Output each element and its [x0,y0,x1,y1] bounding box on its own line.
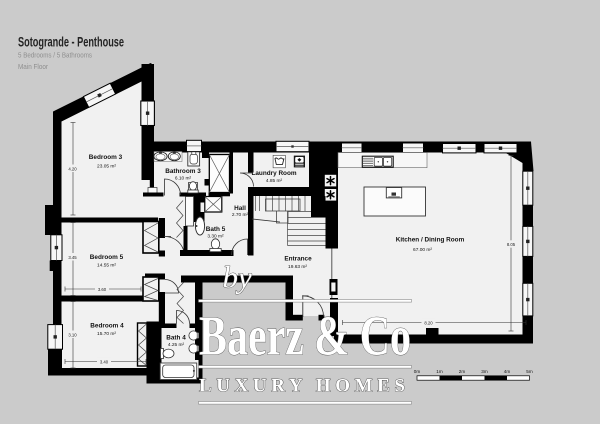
svg-text:3.60: 3.60 [98,287,107,292]
svg-text:Bathroom 3: Bathroom 3 [165,168,201,175]
svg-text:Bedroom 5: Bedroom 5 [90,254,124,261]
svg-text:3m: 3m [481,369,488,374]
svg-text:0m: 0m [414,369,421,374]
svg-text:2.70 m²: 2.70 m² [232,212,249,218]
svg-text:Bath 5: Bath 5 [206,226,226,233]
svg-text:Entrance: Entrance [284,255,312,262]
svg-text:67.00 m²: 67.00 m² [413,247,432,253]
svg-text:3.30 m²: 3.30 m² [207,234,224,240]
svg-text:Bedroom 3: Bedroom 3 [89,154,123,161]
svg-text:4.85 m²: 4.85 m² [266,178,283,184]
svg-text:Bath 4: Bath 4 [166,334,186,341]
svg-text:Kitchen / Dining Room: Kitchen / Dining Room [396,236,465,243]
svg-text:Bedroom 4: Bedroom 4 [90,322,124,329]
svg-text:8.20: 8.20 [424,321,433,326]
svg-text:3.40: 3.40 [100,360,109,365]
svg-text:5 Bedrooms / 5 Bathrooms: 5 Bedrooms / 5 Bathrooms [18,51,92,60]
svg-text:Sotogrande - Penthouse: Sotogrande - Penthouse [18,33,124,49]
svg-text:14.55 m²: 14.55 m² [97,263,116,269]
svg-text:5m: 5m [526,369,533,374]
svg-text:2m: 2m [459,369,466,374]
svg-text:15.70 m²: 15.70 m² [97,331,116,337]
svg-text:LUXURY HOMES: LUXURY HOMES [199,376,410,397]
svg-text:19.63 m²: 19.63 m² [288,264,307,270]
svg-text:8.05: 8.05 [507,242,516,247]
svg-text:by: by [223,260,253,295]
svg-text:4.25 m²: 4.25 m² [168,342,185,348]
svg-text:23.05 m²: 23.05 m² [97,163,116,169]
svg-text:Baerz & Co: Baerz & Co [199,306,411,368]
svg-text:4.20: 4.20 [68,166,77,171]
svg-text:Hall: Hall [234,205,246,212]
svg-text:3.10: 3.10 [68,332,77,337]
svg-text:1m: 1m [436,369,443,374]
svg-text:4m: 4m [504,369,511,374]
svg-text:Laundry Room: Laundry Room [251,170,296,177]
svg-text:3.45: 3.45 [68,255,77,260]
svg-text:Main Floor: Main Floor [18,62,48,71]
svg-text:6.10 m²: 6.10 m² [175,175,192,181]
